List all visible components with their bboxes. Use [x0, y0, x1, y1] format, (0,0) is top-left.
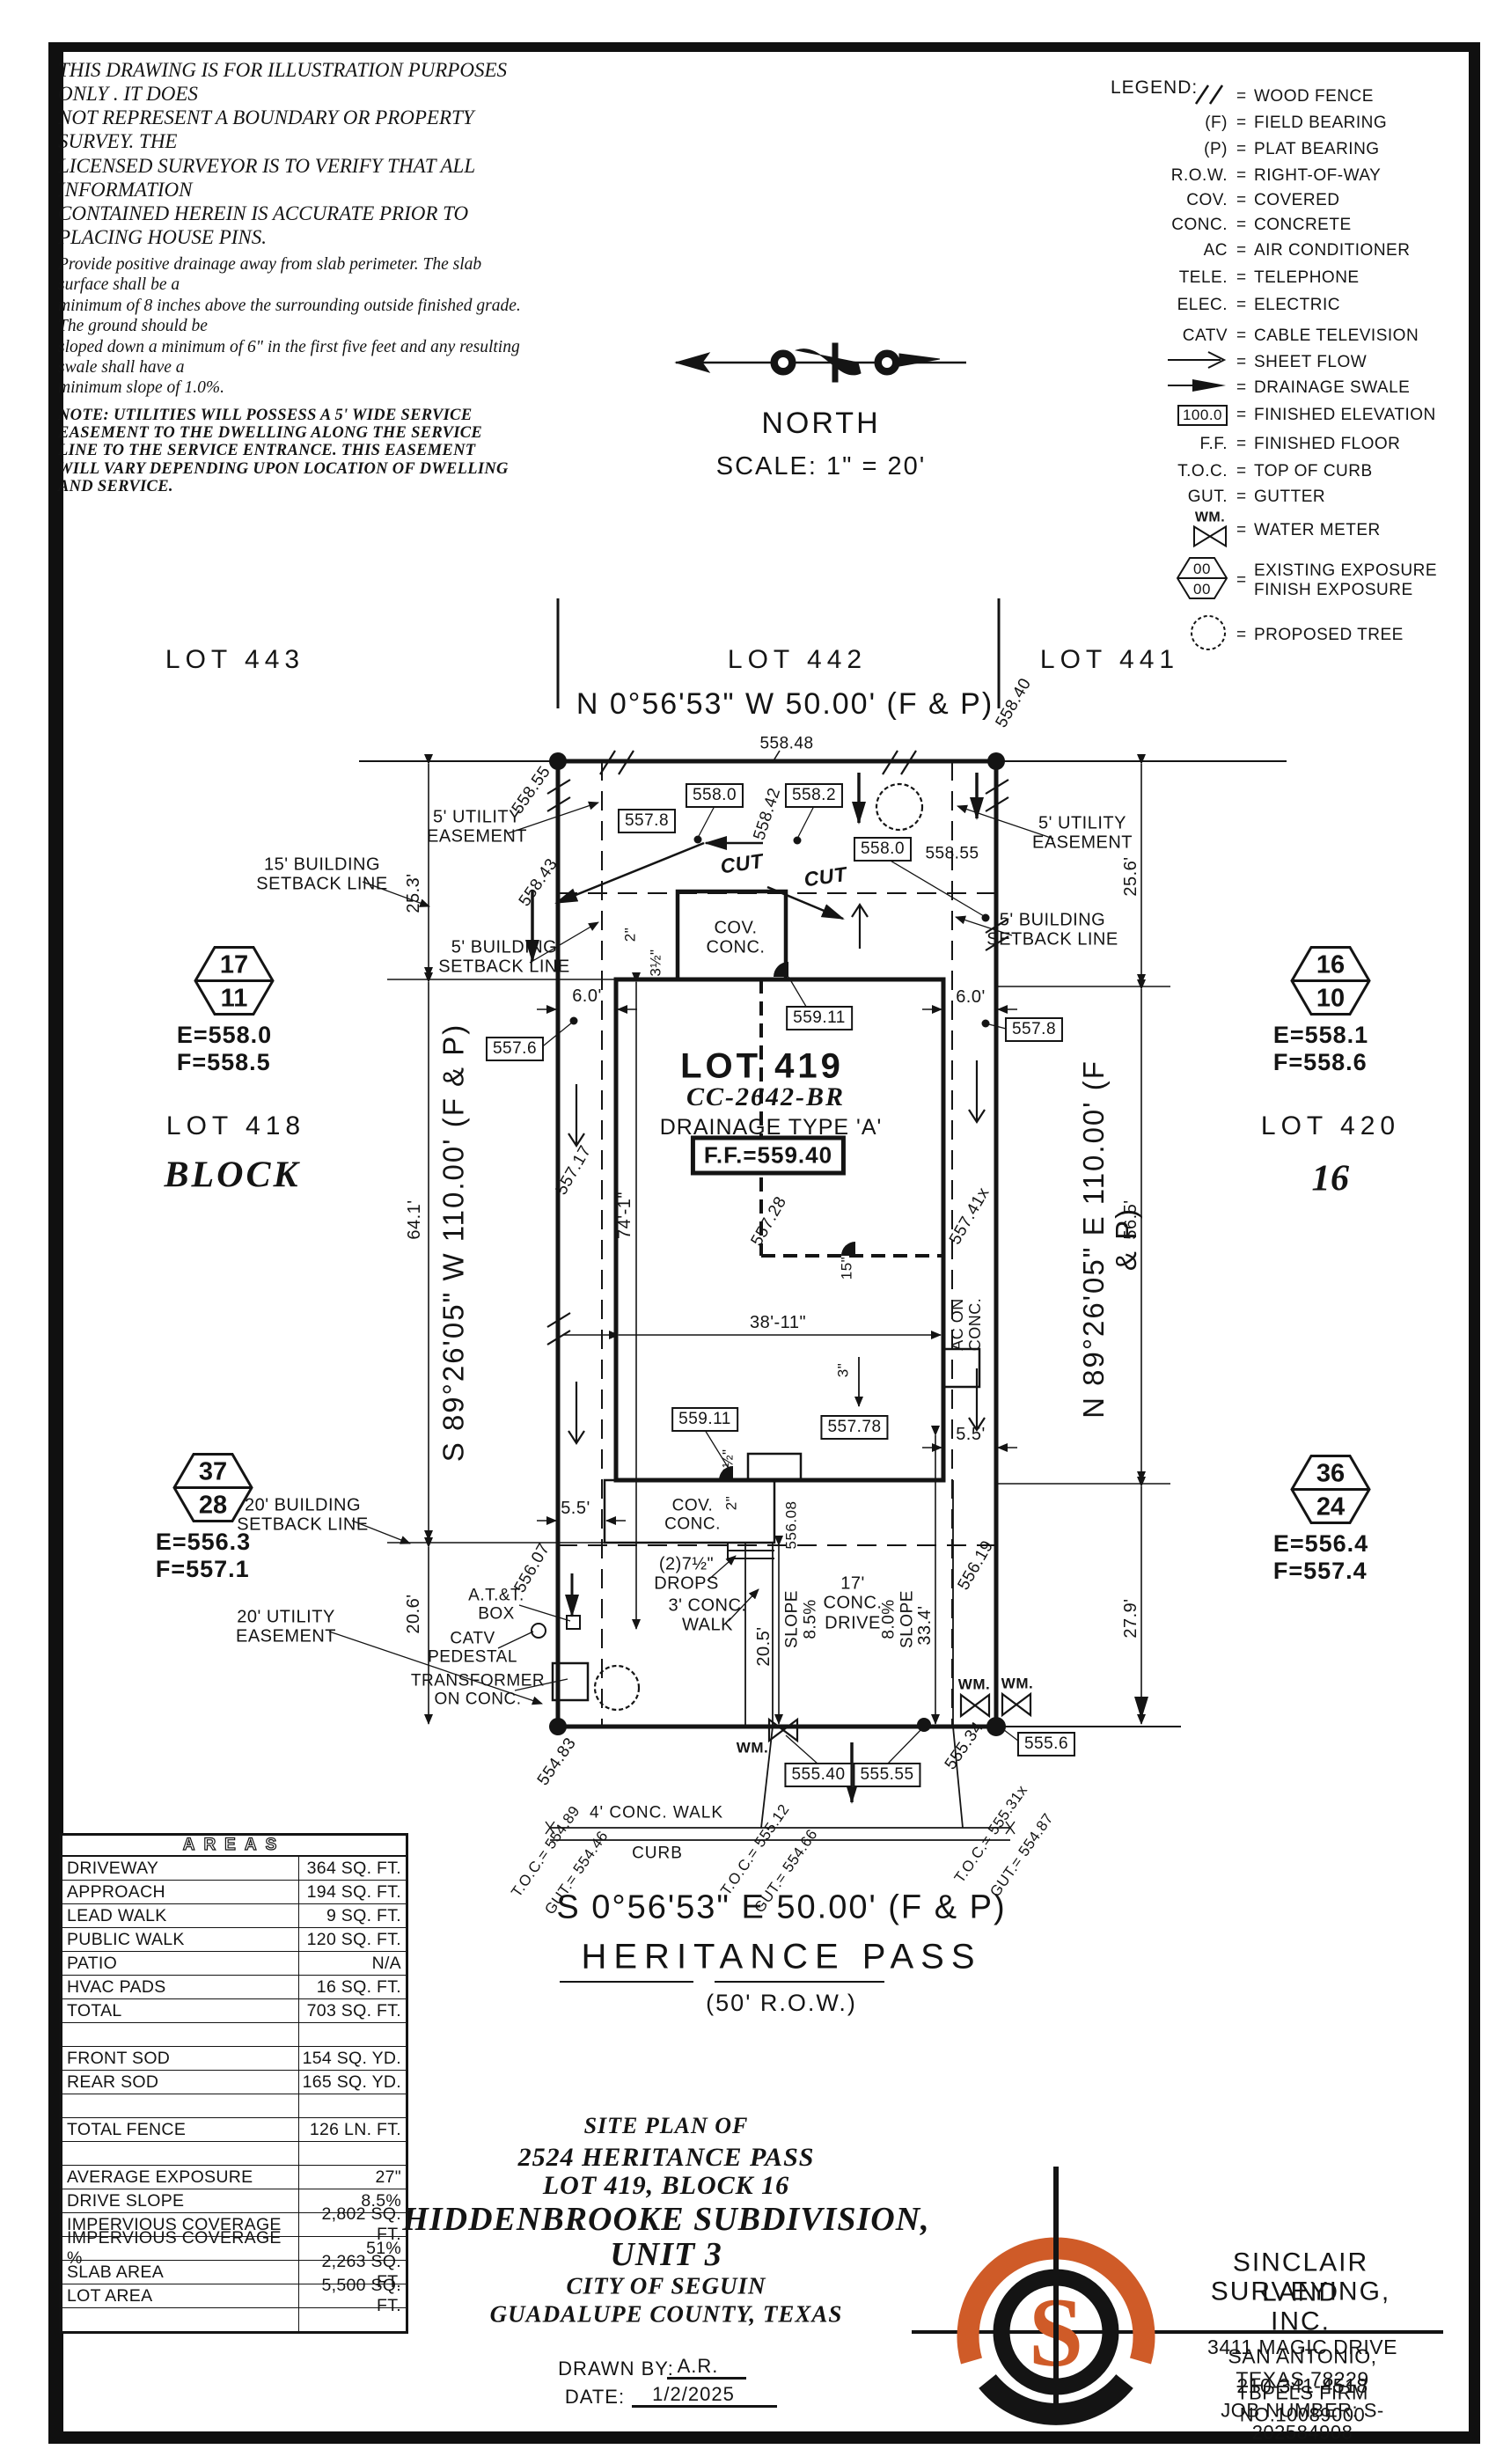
- areas-row: DRIVEWAY364 SQ. FT.: [62, 1857, 406, 1880]
- plan-label: 558.55: [925, 844, 979, 862]
- plan-label: COV. CONC.: [664, 1497, 721, 1535]
- finished-elevation-box: 558.0: [686, 783, 744, 808]
- plan-label: 5.5': [561, 1499, 590, 1518]
- finished-elevation-box: 557.8: [618, 809, 676, 833]
- exposure-values: E=556.4 F=557.4: [1273, 1530, 1368, 1585]
- svg-text:24: 24: [1316, 1493, 1345, 1522]
- areas-key: DRIVE SLOPE: [62, 2189, 299, 2212]
- plan-label: 5' BUILDING SETBACK LINE: [438, 938, 569, 978]
- plan-label: 74'-1": [615, 1192, 634, 1239]
- plan-label: 15' BUILDING SETBACK LINE: [256, 855, 387, 895]
- plan-label: LOT 441: [1040, 645, 1179, 675]
- date-label: DATE:: [565, 2386, 625, 2409]
- finished-elevation-box: 557.6: [486, 1037, 544, 1061]
- areas-key: [62, 2142, 299, 2165]
- areas-key: REAR SOD: [62, 2071, 299, 2094]
- svg-text:28: 28: [199, 1492, 227, 1520]
- areas-key: PATIO: [62, 1952, 299, 1975]
- date-underline: [632, 2405, 777, 2408]
- areas-row: PUBLIC WALK120 SQ. FT.: [62, 1927, 406, 1951]
- areas-row: TOTAL703 SQ. FT.: [62, 1998, 406, 2022]
- areas-value: 126 LN. FT.: [299, 2118, 406, 2141]
- plan-label: 38'-11": [750, 1313, 806, 1332]
- areas-row: AVERAGE EXPOSURE27": [62, 2165, 406, 2189]
- areas-value: 2,802 SQ. FT.: [299, 2213, 406, 2236]
- plan-label: AC ON CONC.: [949, 1298, 984, 1352]
- plan-label: 5' UTILITY EASEMENT: [1032, 814, 1133, 854]
- svg-text:11: 11: [221, 985, 248, 1013]
- plan-label: 25.6': [1121, 856, 1140, 896]
- areas-row: FRONT SOD154 SQ. YD.: [62, 2046, 406, 2070]
- drawn-by-value: A.R.: [678, 2355, 719, 2378]
- plan-label: HERITANCE PASS: [581, 1938, 981, 1977]
- areas-value: [299, 2094, 406, 2117]
- areas-key: LOT AREA: [62, 2284, 299, 2307]
- areas-value: 703 SQ. FT.: [299, 1999, 406, 2022]
- areas-key: DRIVEWAY: [62, 1857, 299, 1880]
- plan-label: SLOPE 8.5%: [783, 1590, 821, 1648]
- plan-label: 64.1': [405, 1199, 424, 1239]
- exposure-values: E=558.1 F=558.6: [1273, 1022, 1368, 1076]
- plan-label: 3½": [719, 1448, 736, 1476]
- finished-elevation-box: 559.11: [786, 1006, 853, 1030]
- plan-label: 6.0': [956, 987, 986, 1007]
- svg-text:10: 10: [1316, 985, 1345, 1013]
- areas-row: TOTAL FENCE126 LN. FT.: [62, 2117, 406, 2141]
- plan-label: LOT 443: [165, 645, 304, 675]
- scale-label: SCALE: 1" = 20': [716, 452, 926, 480]
- plan-label: 20' BUILDING SETBACK LINE: [237, 1496, 368, 1536]
- areas-value: 9 SQ. FT.: [299, 1904, 406, 1927]
- plan-label: S 89°26'05" W 110.00' (F & P): [438, 1023, 471, 1462]
- areas-value: 27": [299, 2166, 406, 2189]
- plan-label: LOT 418: [166, 1111, 305, 1141]
- finished-elevation-box: 558.2: [785, 783, 843, 808]
- plan-label: 17' CONC. DRIVE: [824, 1573, 883, 1632]
- plan-label: 556.08: [782, 1501, 799, 1550]
- plan-label: 3' CONC. WALK: [669, 1596, 747, 1636]
- areas-row: [62, 2141, 406, 2165]
- areas-value: 194 SQ. FT.: [299, 1881, 406, 1903]
- title-city: CITY OF SEGUIN: [566, 2273, 766, 2300]
- plan-label: 15": [838, 1257, 854, 1280]
- plan-label: 4' CONC. WALK: [590, 1803, 723, 1822]
- areas-row: APPROACH194 SQ. FT.: [62, 1880, 406, 1903]
- finished-floor-box: F.F.=559.40: [691, 1136, 846, 1176]
- title-unit: UNIT 3: [610, 2235, 722, 2274]
- areas-key: IMPERVIOUS COVERAGE %: [62, 2237, 299, 2260]
- areas-key: TOTAL FENCE: [62, 2118, 299, 2141]
- areas-key: [62, 2308, 299, 2331]
- plan-label: A.T.&T. BOX: [468, 1587, 524, 1624]
- areas-value: 364 SQ. FT.: [299, 1857, 406, 1880]
- plan-label: 56.5': [1121, 1199, 1140, 1239]
- finished-elevation-box: 558.0: [854, 837, 912, 862]
- plan-label: 558.48: [759, 734, 813, 752]
- areas-key: SLAB AREA: [62, 2261, 299, 2284]
- areas-value: [299, 2308, 406, 2331]
- title-site-plan-of: SITE PLAN OF: [584, 2113, 749, 2139]
- title-address: 2524 HERITANCE PASS: [518, 2143, 815, 2173]
- areas-key: [62, 2023, 299, 2046]
- plan-label: LOT 420: [1261, 1111, 1400, 1141]
- plan-label: (2)7½" DROPS: [654, 1555, 719, 1595]
- areas-key: APPROACH: [62, 1881, 299, 1903]
- plan-label: (50' R.O.W.): [706, 1990, 857, 2016]
- areas-value: N/A: [299, 1952, 406, 1975]
- plan-label: 27.9': [1121, 1598, 1140, 1638]
- plan-label: LOT 442: [728, 645, 867, 675]
- plan-label: 5' UTILITY EASEMENT: [427, 808, 527, 847]
- plan-label: 20.6': [404, 1594, 423, 1633]
- areas-key: AVERAGE EXPOSURE: [62, 2166, 299, 2189]
- exposure-values: E=558.0 F=558.5: [177, 1022, 272, 1076]
- areas-value: 5,500 SQ. FT.: [299, 2284, 406, 2307]
- areas-key: HVAC PADS: [62, 1976, 299, 1998]
- plan-label: WM.: [1001, 1675, 1033, 1691]
- areas-value: [299, 2023, 406, 2046]
- areas-row: [62, 2307, 406, 2331]
- plan-label: 6.0': [572, 986, 602, 1006]
- areas-value: 16 SQ. FT.: [299, 1976, 406, 1998]
- finished-elevation-box: 555.55: [853, 1763, 920, 1787]
- areas-row: PATION/A: [62, 1951, 406, 1975]
- plan-label: 2": [722, 1496, 739, 1511]
- plan-label: 3": [834, 1363, 851, 1378]
- plan-label: S 0°56'53" E 50.00' (F & P): [556, 1889, 1006, 1927]
- areas-key: LEAD WALK: [62, 1904, 299, 1927]
- finished-elevation-box: 557.78: [820, 1415, 888, 1440]
- plan-label: 20.5': [754, 1626, 774, 1666]
- areas-value: [299, 2142, 406, 2165]
- plan-label: 2": [621, 928, 638, 942]
- finished-elevation-box: 557.8: [1005, 1017, 1063, 1042]
- company-job-number: JOB NUMBER: S-202584908: [1206, 2400, 1399, 2443]
- plan-label: 3½": [647, 949, 664, 976]
- areas-row: REAR SOD165 SQ. YD.: [62, 2070, 406, 2094]
- drawn-by-label: DRAWN BY:: [558, 2358, 674, 2380]
- svg-text:17: 17: [220, 951, 248, 979]
- date-value: 1/2/2025: [652, 2383, 735, 2406]
- plan-label: TRANSFORMER ON CONC.: [411, 1672, 545, 1710]
- exposure-hexagon: 17 11: [194, 945, 275, 1022]
- areas-key: FRONT SOD: [62, 2047, 299, 2070]
- plan-label: 5.5': [956, 1425, 986, 1444]
- plan-label: CC-2642-BR: [686, 1082, 845, 1112]
- areas-value: 120 SQ. FT.: [299, 1928, 406, 1951]
- exposure-hexagon: 36 24: [1290, 1454, 1371, 1530]
- areas-row: HVAC PADS16 SQ. FT.: [62, 1975, 406, 1998]
- svg-text:37: 37: [199, 1458, 227, 1486]
- plan-label: LOT 419: [680, 1047, 844, 1087]
- exposure-hexagon: 16 10: [1290, 945, 1371, 1022]
- areas-title: AREAS: [62, 1836, 406, 1857]
- title-subdivision: HIDDENBROOKE SUBDIVISION,: [402, 2200, 929, 2239]
- drawn-by-underline: [667, 2377, 746, 2380]
- plan-label: CATV PEDESTAL: [428, 1630, 517, 1668]
- areas-table: AREAS DRIVEWAY364 SQ. FT.APPROACH194 SQ.…: [60, 1833, 408, 2334]
- north-label: NORTH: [761, 407, 880, 440]
- areas-value: 165 SQ. YD.: [299, 2071, 406, 2094]
- areas-row: [62, 2094, 406, 2117]
- plan-label: WM.: [958, 1676, 990, 1692]
- plan-label: 33.4': [915, 1605, 935, 1645]
- plan-label: N 0°56'53" W 50.00' (F & P): [576, 687, 994, 721]
- areas-row: [62, 2022, 406, 2046]
- areas-key: [62, 2094, 299, 2117]
- finished-elevation-box: 555.6: [1017, 1732, 1075, 1756]
- plan-label: 8.0% SLOPE: [880, 1590, 918, 1648]
- svg-text:16: 16: [1316, 951, 1345, 979]
- plan-label: BLOCK: [164, 1155, 300, 1196]
- plan-label: 25.3': [404, 873, 423, 913]
- site-plan-page: THIS DRAWING IS FOR ILLUSTRATION PURPOSE…: [0, 0, 1496, 2464]
- title-lot-block: LOT 419, BLOCK 16: [543, 2171, 789, 2201]
- company-name-2: SURVEYING, INC.: [1203, 2277, 1398, 2336]
- plan-label: 5' BUILDING SETBACK LINE: [986, 911, 1118, 950]
- finished-elevation-box: 555.40: [784, 1763, 852, 1787]
- plan-label: CURB: [632, 1844, 683, 1862]
- areas-key: TOTAL: [62, 1999, 299, 2022]
- svg-text:36: 36: [1316, 1460, 1345, 1488]
- plan-label: COV. CONC.: [707, 919, 766, 958]
- title-county: GUADALUPE COUNTY, TEXAS: [490, 2301, 843, 2328]
- areas-row: LOT AREA5,500 SQ. FT.: [62, 2284, 406, 2307]
- exposure-values: E=556.3 F=557.1: [156, 1529, 251, 1583]
- plan-label: 20' UTILITY EASEMENT: [236, 1608, 336, 1647]
- plan-label: 16: [1312, 1158, 1350, 1199]
- areas-row: LEAD WALK9 SQ. FT.: [62, 1903, 406, 1927]
- areas-value: 154 SQ. YD.: [299, 2047, 406, 2070]
- finished-elevation-box: 559.11: [671, 1407, 738, 1432]
- exposure-hexagon: 37 28: [172, 1452, 253, 1529]
- plan-label: WM.: [737, 1739, 768, 1756]
- areas-key: PUBLIC WALK: [62, 1928, 299, 1951]
